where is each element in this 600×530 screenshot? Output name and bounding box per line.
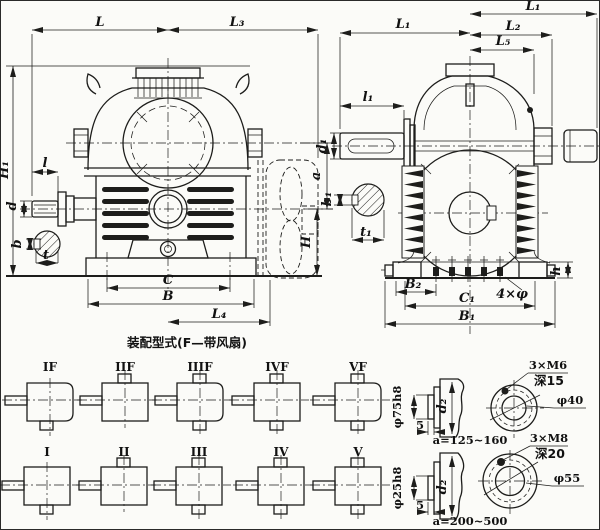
spigot-len-label-small: 5 (416, 418, 424, 432)
center-distance-large: a=200~500 (433, 514, 508, 528)
dim-label-C1: C₁ (459, 291, 475, 306)
spigot-len-label-large: 5 (416, 498, 424, 512)
dim-label-t: t (43, 248, 49, 263)
dim-label-L5: L₅ (495, 34, 511, 49)
bore-dia-label-small: φ40 (557, 393, 583, 407)
dim-label-H1: H₁ (0, 161, 12, 180)
vent-plug (527, 107, 533, 113)
dim-label-h: h (549, 266, 564, 275)
dim-label-l: l (43, 156, 48, 171)
dim-label-B1: B₁ (458, 309, 476, 324)
assembly-type-caption: 装配型式(F—带风扇) (126, 335, 247, 350)
dim-label-H: H (299, 235, 314, 249)
hole-depth-label-small: 深15 (534, 373, 564, 388)
bore-dia-label-large: φ55 (554, 471, 580, 485)
spigot-dia-label-large: φ25h8 (390, 467, 404, 510)
type-label-IF: IF (43, 360, 58, 374)
dim-label-L2: L₂ (505, 19, 521, 34)
dim-label-4xphi: 4×φ (496, 287, 528, 302)
dim-label-b1: b₁ (320, 192, 335, 207)
shaft-dia-label-large: d₂ (435, 479, 450, 494)
dim-label-L1-top: L₁ (525, 0, 541, 14)
tapped-holes-label-small: 3×M6 (529, 358, 567, 372)
tapped-holes-label-large: 3×M8 (530, 431, 568, 445)
dim-label-l1: l₁ (363, 90, 374, 105)
dim-label-b: b (10, 239, 25, 248)
dim-label-d1: d₁ (315, 139, 330, 154)
dim-label-L1: L₁ (395, 17, 411, 32)
keyway-notch (34, 239, 40, 249)
type-label-I: I (44, 445, 50, 459)
dim-label-d: d (5, 201, 20, 210)
dim-label-L: L (94, 15, 104, 30)
spigot-dia-label-small: φ75h8 (390, 386, 404, 429)
worm-gear-reducer-drawing: L L₃ H₁ l d b t C B L₄ (0, 0, 600, 530)
cap-ribs (134, 78, 202, 98)
dim-label-a: a (309, 172, 324, 180)
dim-label-B2: B₂ (404, 277, 422, 292)
hole-depth-label-large: 深20 (535, 446, 565, 461)
dim-label-L4: L₄ (211, 307, 227, 322)
keyway-notch-side (352, 195, 358, 205)
center-distance-small: a=125~160 (433, 433, 508, 447)
dim-label-C: C (163, 273, 174, 288)
dim-label-L3: L₃ (229, 15, 245, 30)
dim-label-B: B (162, 289, 174, 304)
shaft-dia-label-small: d₂ (435, 398, 450, 413)
hub-keyway (487, 206, 496, 220)
dim-label-t1: t₁ (360, 225, 372, 240)
